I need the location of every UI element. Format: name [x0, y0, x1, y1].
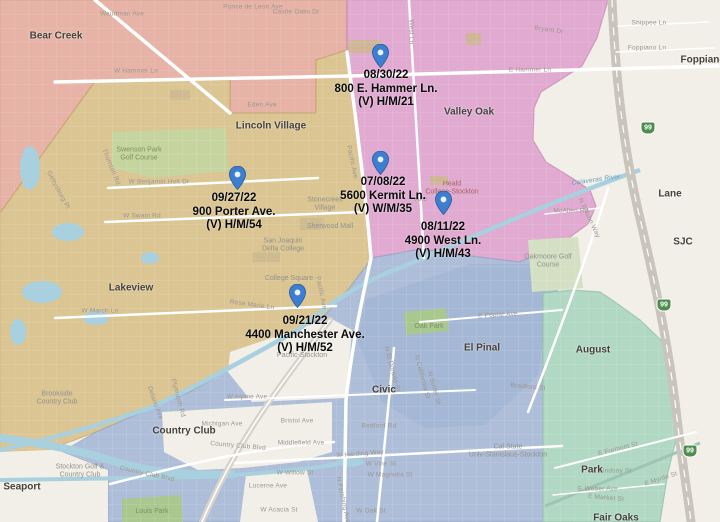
incident-address: 5600 Kermit Ln.	[340, 190, 426, 204]
incident-label: 09/21/224400 Manchester Ave.(V) H/M/52	[245, 315, 364, 356]
incident-pin[interactable]	[372, 151, 389, 175]
highway-99-shield: 99	[641, 122, 656, 135]
incident-label: 07/08/225600 Kermit Ln.(V) W/M/35	[340, 176, 426, 217]
incident-address: 800 E. Hammer Ln.	[335, 83, 438, 97]
incident-victim: (V) H/M/21	[335, 96, 438, 110]
highway-99-shield: 99	[657, 299, 672, 312]
map-canvas[interactable]: Waudman AvePonce de Leon AveCastle Oaks …	[0, 0, 720, 522]
incident-pin[interactable]	[289, 284, 306, 308]
incident-pin[interactable]	[229, 166, 246, 190]
incident-date: 07/08/22	[340, 176, 426, 190]
highway-99-shield: 99	[683, 445, 698, 458]
incident-address: 4400 Manchester Ave.	[245, 329, 364, 343]
incident-victim: (V) H/M/43	[405, 248, 482, 262]
incident-date: 08/11/22	[405, 221, 482, 235]
incident-pin[interactable]	[372, 44, 389, 68]
incident-victim: (V) H/M/52	[245, 342, 364, 356]
incident-date: 09/27/22	[193, 192, 276, 206]
incident-label: 08/11/224900 West Ln.(V) H/M/43	[405, 221, 482, 262]
incident-address: 900 Porter Ave.	[193, 206, 276, 220]
incident-victim: (V) W/M/35	[340, 203, 426, 217]
incident-victim: (V) H/M/54	[193, 219, 276, 233]
incident-label: 09/27/22900 Porter Ave.(V) H/M/54	[193, 192, 276, 233]
incident-pin[interactable]	[435, 191, 452, 215]
incident-address: 4900 West Ln.	[405, 235, 482, 249]
incident-date: 09/21/22	[245, 315, 364, 329]
incident-date: 08/30/22	[335, 69, 438, 83]
incident-label: 08/30/22800 E. Hammer Ln.(V) H/M/21	[335, 69, 438, 110]
